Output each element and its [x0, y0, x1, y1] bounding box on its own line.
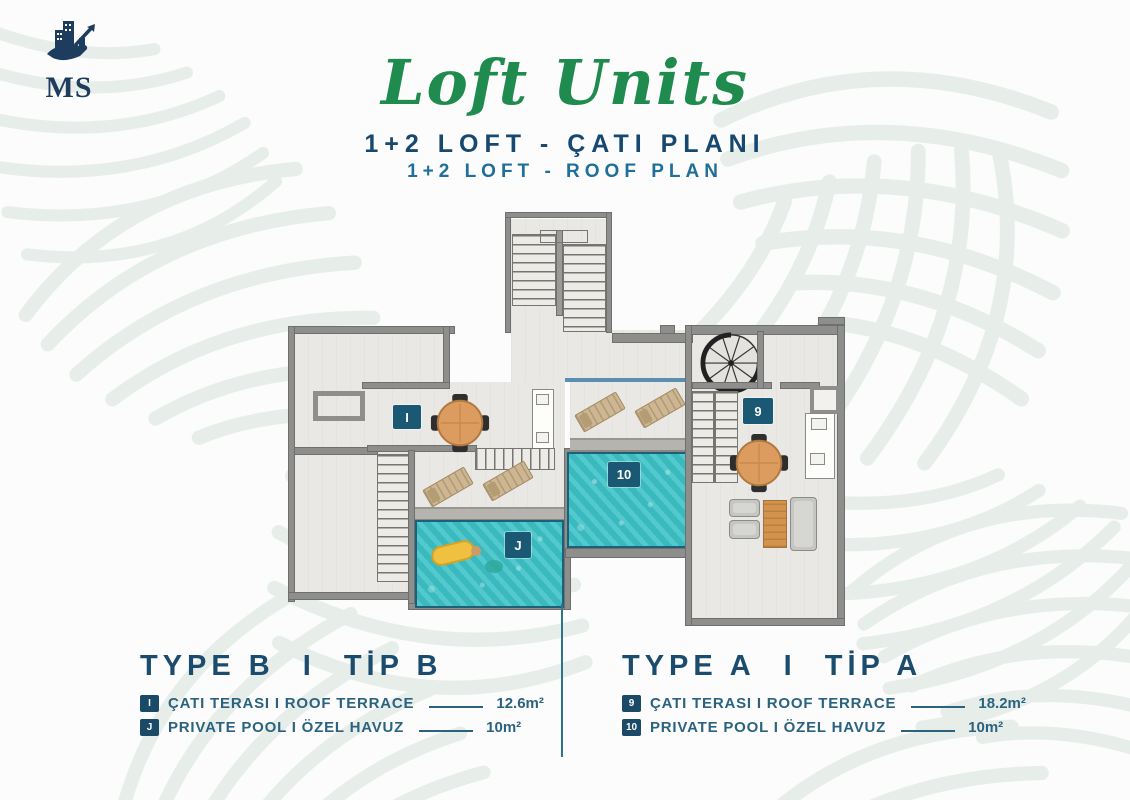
wall	[606, 212, 612, 333]
legend-area: 12.6m²	[496, 695, 544, 712]
wall	[443, 326, 450, 389]
page-title: Loft Units	[0, 46, 1130, 119]
wall	[660, 325, 675, 334]
legend-title-separator: I	[784, 650, 797, 683]
legend-type-b: TYPE B I TİP B I ÇATI TERASI I ROOF TERR…	[140, 650, 544, 736]
page: { "logo": { "text": "MS" }, "header": { …	[0, 0, 1130, 800]
legend-title-tr: TİP A	[825, 650, 923, 683]
wall	[837, 325, 845, 626]
wall	[685, 618, 845, 626]
legend-code-box: I	[140, 695, 159, 712]
wall	[565, 548, 692, 558]
wall	[362, 382, 450, 389]
wall	[288, 326, 295, 602]
wall	[505, 212, 612, 218]
terrace-b-label: I	[393, 405, 421, 429]
legend-fill-line	[901, 730, 955, 732]
legend-area: 10m²	[968, 719, 1003, 736]
pool-edge	[415, 507, 564, 521]
glass-railing	[565, 378, 692, 382]
legend-fill-line	[911, 706, 965, 708]
closet	[313, 391, 365, 421]
legend-label: ÇATI TERASI I ROOF TERRACE	[168, 695, 414, 712]
legend-row: 9 ÇATI TERASI I ROOF TERRACE 18.2m²	[622, 695, 1026, 712]
legend-code-box: 9	[622, 695, 641, 712]
wall	[294, 447, 378, 455]
legend-row: 10 PRIVATE POOL I ÖZEL HAVUZ 10m²	[622, 719, 1026, 736]
legend-divider-line	[561, 604, 563, 757]
sink	[810, 453, 825, 465]
sofa	[790, 497, 817, 551]
stair-flight	[512, 234, 556, 306]
wall	[818, 317, 845, 325]
armchair	[729, 499, 760, 517]
dining-table-a	[728, 432, 790, 494]
legend-area: 18.2m²	[978, 695, 1026, 712]
legend-label: PRIVATE POOL I ÖZEL HAVUZ	[650, 719, 886, 736]
dining-table-b	[429, 392, 491, 454]
legend-title-separator: I	[303, 650, 316, 683]
subtitle-english: 1+2 LOFT - ROOF PLAN	[0, 161, 1130, 183]
wall	[757, 331, 764, 389]
pool-a-label: 10	[608, 462, 640, 487]
swimmer	[485, 560, 503, 573]
wall	[685, 325, 692, 626]
legend-row: I ÇATI TERASI I ROOF TERRACE 12.6m²	[140, 695, 544, 712]
legend-label: ÇATI TERASI I ROOF TERRACE	[650, 695, 896, 712]
legend-fill-line	[419, 730, 473, 732]
upper-strip-floor	[294, 332, 444, 386]
legend-title-en: TYPE A	[622, 650, 756, 683]
legend-code-box: 10	[622, 719, 641, 736]
sink	[536, 432, 549, 443]
legend-type-a: TYPE A I TİP A 9 ÇATI TERASI I ROOF TERR…	[622, 650, 1026, 736]
wall	[288, 326, 455, 334]
pool-b-label: J	[505, 532, 531, 558]
legend-type-a-title: TYPE A I TİP A	[622, 650, 1026, 683]
legend-code-box: J	[140, 719, 159, 736]
stair-railing	[540, 230, 588, 243]
legend-title-en: TYPE B	[140, 650, 275, 683]
sink	[536, 394, 549, 405]
stair-flight	[563, 244, 606, 332]
wall	[505, 212, 511, 333]
floor-plan: J I 10 9	[283, 210, 848, 630]
pool-edge	[570, 438, 687, 452]
legend-label: PRIVATE POOL I ÖZEL HAVUZ	[168, 719, 404, 736]
armchair	[729, 520, 760, 539]
legend-title-tr: TİP B	[344, 650, 443, 683]
wall	[612, 333, 693, 343]
legend-row: J PRIVATE POOL I ÖZEL HAVUZ 10m²	[140, 719, 544, 736]
wall	[408, 450, 415, 610]
stair-flight	[377, 454, 410, 582]
coffee-table	[763, 500, 787, 548]
terrace-a-label: 9	[743, 398, 773, 424]
subtitle-turkish: 1+2 LOFT - ÇATI PLANI	[0, 130, 1130, 159]
legend-area: 10m²	[486, 719, 521, 736]
sink	[811, 418, 827, 430]
legend-type-b-title: TYPE B I TİP B	[140, 650, 544, 683]
legend-fill-line	[429, 706, 483, 708]
stair-divider	[713, 391, 716, 483]
closet	[810, 386, 840, 414]
wall	[288, 592, 420, 600]
